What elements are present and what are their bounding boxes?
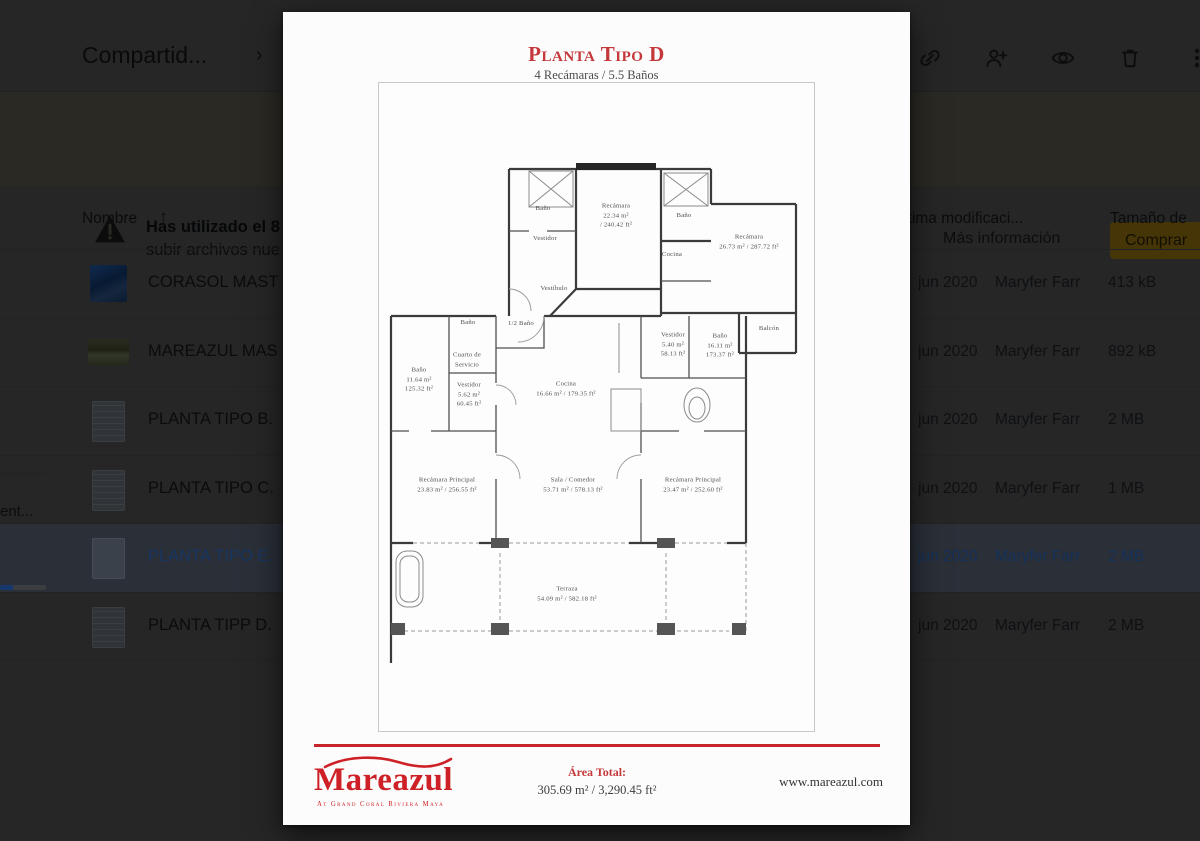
column-header-size[interactable]: Tamaño de	[1110, 210, 1187, 228]
file-size: 413 kB	[1108, 274, 1188, 292]
footer-red-rule	[314, 744, 880, 747]
screen: Compartid... › Has utilizado el 8 subir …	[0, 0, 1200, 841]
floor-plan-sheet: BañoVestidorRecámara 22.34 m² / 240.42 f…	[378, 82, 815, 732]
area-total-label: Área Total:	[497, 765, 697, 780]
file-owner: Maryfer Farr	[995, 411, 1099, 429]
room-label-vestidor-derecho: Vestidor 5.40 m² 58.13 ft²	[661, 330, 686, 359]
file-modified-date: jun 2020	[918, 274, 992, 292]
room-label-bano-derecho: Baño 16.11 m² 173.37 ft²	[706, 331, 734, 360]
file-owner: Maryfer Farr	[995, 343, 1099, 361]
room-label-terraza: Terraza 54.09 m² / 582.18 ft²	[537, 584, 596, 603]
storage-progress-used	[0, 585, 13, 590]
file-owner: Maryfer Farr	[995, 480, 1099, 498]
mareazul-logo: Mareazul	[314, 762, 453, 799]
area-total-block: Área Total: 305.69 m² / 3,290.45 ft²	[497, 765, 697, 798]
room-label-recamara-norte: Recámara 22.34 m² / 240.42 ft²	[600, 201, 632, 230]
room-label-bano-noroeste: Baño	[536, 204, 551, 214]
room-label-recamara-principal-izquierda: Recámara Principal 23.83 m² / 256.55 ft²	[417, 475, 476, 494]
more-info-button[interactable]: Más información	[943, 230, 1060, 248]
room-label-cuarto-servicio: Cuarto de Servicio	[453, 350, 481, 369]
column-header-modified[interactable]: Última modificaci...	[893, 210, 1023, 228]
file-thumbnail	[88, 339, 129, 366]
person-add-icon[interactable]	[983, 45, 1009, 71]
file-size: 2 MB	[1108, 617, 1188, 635]
sort-arrow-up-icon: ↑	[159, 207, 168, 227]
file-modified-date: jun 2020	[918, 480, 992, 498]
room-label-vestibulo: Vestíbulo	[540, 284, 567, 294]
file-owner: Maryfer Farr	[995, 617, 1099, 635]
plan-title: Planta Tipo D	[283, 42, 910, 67]
room-label-sala-comedor: Sala / Comedor 53.71 m² / 578.13 ft²	[543, 475, 602, 494]
file-modified-date: jun 2020	[918, 617, 992, 635]
room-label-bano-noreste: Baño	[677, 211, 692, 221]
trash-icon[interactable]	[1117, 45, 1143, 71]
file-size: 1 MB	[1108, 480, 1188, 498]
file-thumbnail	[92, 607, 125, 648]
file-thumbnail	[90, 265, 127, 302]
floor-plan-drawing	[379, 83, 814, 731]
room-label-bano-izquierdo: Baño 11.64 m² 125.32 ft²	[405, 365, 433, 394]
column-header-name[interactable]: Nombre	[82, 210, 137, 228]
room-label-bano-servicio: Baño	[461, 318, 476, 328]
room-label-balcon: Balcón	[759, 324, 779, 334]
breadcrumb: Compartid...	[82, 42, 207, 69]
file-thumbnail	[92, 470, 125, 511]
room-label-cocina: Cocina 16.66 m² / 179.35 ft²	[536, 379, 595, 398]
file-size: 892 kB	[1108, 343, 1188, 361]
file-size: 2 MB	[1108, 548, 1188, 566]
area-total-value: 305.69 m² / 3,290.45 ft²	[497, 783, 697, 798]
room-label-vestidor-norte: Vestidor	[533, 234, 557, 244]
website-link: www.mareazul.com	[735, 774, 883, 790]
room-label-vestidor-izquierdo: Vestidor 5.62 m² 60.45 ft²	[457, 380, 482, 409]
file-size: 2 MB	[1108, 411, 1188, 429]
sidebar-divider	[0, 473, 46, 474]
sidebar-storage-label: ent...	[0, 503, 33, 520]
room-label-cocina-nook: Cocina	[662, 250, 682, 260]
plan-subtitle: 4 Recámaras / 5.5 Baños	[283, 68, 910, 83]
file-owner: Maryfer Farr	[995, 548, 1099, 566]
room-label-recamara-principal-derecha: Recámara Principal 23.47 m² / 252.60 ft²	[663, 475, 722, 494]
chevron-right-icon: ›	[256, 44, 263, 67]
room-label-recamara-este: Recámara 26.73 m² / 287.72 ft²	[719, 232, 778, 251]
more-icon[interactable]	[1184, 45, 1200, 71]
file-owner: Maryfer Farr	[995, 274, 1099, 292]
logo-subtext: At Grand Coral Riviera Maya	[317, 801, 444, 808]
storage-progress-bar	[0, 585, 46, 590]
file-modified-date: jun 2020	[918, 343, 992, 361]
file-thumbnail	[92, 401, 125, 442]
preview-icon[interactable]	[1050, 45, 1076, 71]
file-thumbnail	[92, 538, 125, 579]
file-modified-date: jun 2020	[918, 411, 992, 429]
file-modified-date: jun 2020	[918, 548, 992, 566]
room-label-medio-bano: 1/2 Baño	[508, 319, 534, 329]
pdf-preview-card: Planta Tipo D 4 Recámaras / 5.5 Baños	[283, 12, 910, 825]
link-icon[interactable]	[917, 45, 943, 71]
